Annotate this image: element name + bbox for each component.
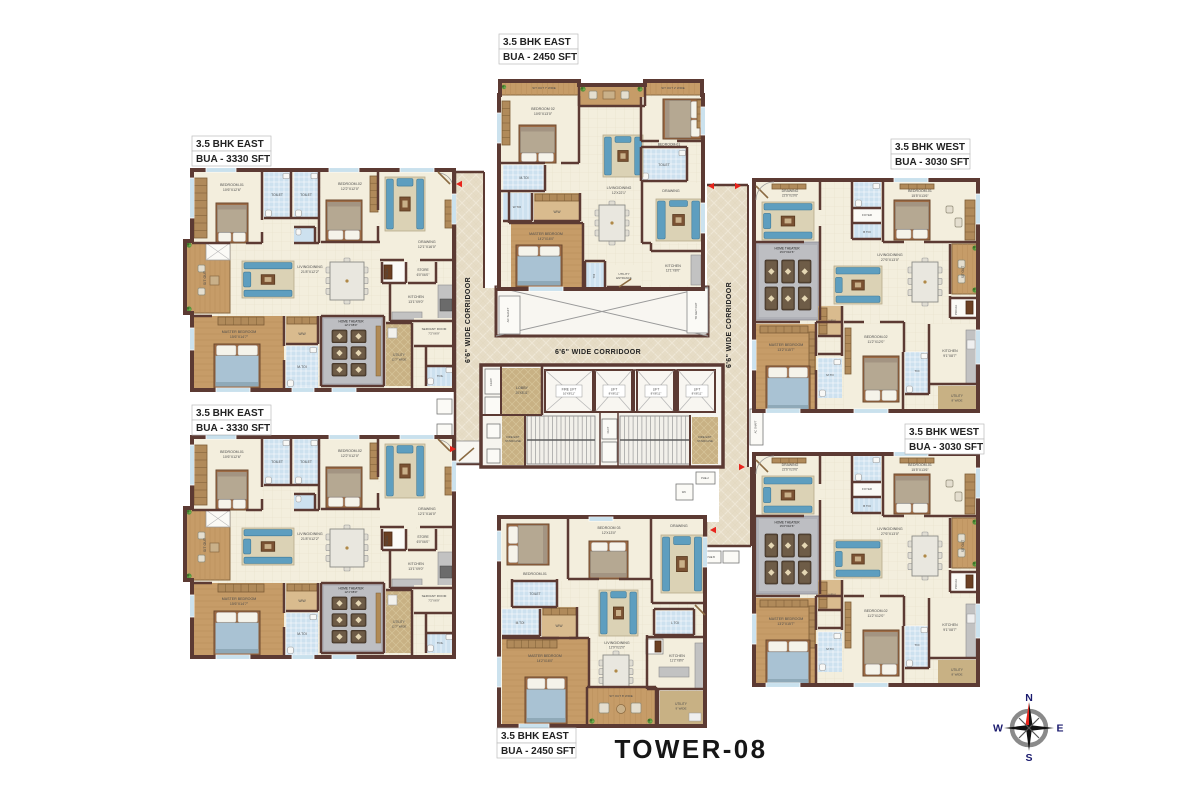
- svg-text:KITCHEN: KITCHEN: [665, 264, 681, 268]
- svg-text:BEDROOM-02: BEDROOM-02: [338, 449, 362, 453]
- svg-text:15'2"X10'6": 15'2"X10'6": [780, 524, 795, 528]
- svg-text:POOJA: POOJA: [385, 268, 389, 280]
- svg-text:6'6" WIDE CORRIDOOR: 6'6" WIDE CORRIDOOR: [555, 349, 641, 356]
- svg-text:TOILET: TOILET: [300, 193, 312, 197]
- svg-text:KITCHEN: KITCHEN: [408, 295, 424, 299]
- svg-text:TOIL: TOIL: [437, 641, 444, 645]
- svg-text:8' WIDE: 8' WIDE: [952, 399, 963, 403]
- svg-text:TOILET: TOILET: [658, 163, 669, 167]
- svg-text:BEDROOM-01: BEDROOM-01: [220, 450, 244, 454]
- svg-text:BEDROOM 03: BEDROOM 03: [598, 526, 621, 530]
- svg-text:MASTER BEDROOM: MASTER BEDROOM: [769, 343, 804, 347]
- svg-text:TOI: TOI: [915, 643, 920, 647]
- svg-text:27'6"X13'0": 27'6"X13'0": [881, 258, 900, 262]
- svg-text:6'6" WIDE CORRIDOOR: 6'6" WIDE CORRIDOOR: [465, 277, 472, 363]
- svg-text:UTILITY: UTILITY: [951, 668, 964, 672]
- svg-text:12'1"X16'0": 12'1"X16'0": [418, 245, 437, 249]
- svg-text:STORE: STORE: [417, 535, 429, 539]
- svg-text:BUA - 3330 SFT: BUA - 3330 SFT: [196, 154, 270, 165]
- svg-text:6'0"X6'0": 6'0"X6'0": [417, 540, 430, 544]
- svg-text:LOBBY: LOBBY: [516, 386, 529, 390]
- svg-text:BEDROOM-02: BEDROOM-02: [864, 335, 887, 339]
- svg-text:N: N: [1025, 692, 1033, 704]
- svg-text:TOI: TOI: [915, 369, 920, 373]
- svg-text:14'2"X16'0": 14'2"X16'0": [538, 237, 554, 241]
- svg-text:FOYER: FOYER: [862, 213, 872, 217]
- svg-text:TOWER-08: TOWER-08: [614, 734, 767, 764]
- svg-text:STORE: STORE: [417, 268, 429, 272]
- svg-text:15'6"X14'7": 15'6"X14'7": [230, 602, 249, 606]
- svg-text:21'8"X12'2": 21'8"X12'2": [301, 537, 320, 541]
- svg-text:UTILITY: UTILITY: [675, 702, 688, 706]
- svg-text:BEDROOM-01: BEDROOM-01: [220, 183, 244, 187]
- svg-text:POOJA: POOJA: [954, 305, 958, 315]
- svg-text:BUA - 3030 SFT: BUA - 3030 SFT: [909, 442, 983, 453]
- svg-text:3.5 BHK WEST: 3.5 BHK WEST: [895, 142, 965, 153]
- svg-text:WIW: WIW: [554, 210, 561, 214]
- svg-text:STAIRCASE: STAIRCASE: [505, 439, 521, 443]
- svg-text:PHE B: PHE B: [707, 555, 715, 559]
- svg-text:LIVING/DINING: LIVING/DINING: [297, 265, 323, 269]
- svg-text:E: E: [1056, 723, 1063, 735]
- svg-text:12'X13'0": 12'X13'0": [602, 531, 617, 535]
- svg-text:PHE-2: PHE-2: [701, 476, 709, 480]
- svg-text:BEDROOM-02: BEDROOM-02: [338, 182, 362, 186]
- svg-text:KITCHEN: KITCHEN: [408, 562, 424, 566]
- svg-text:DRAWING: DRAWING: [782, 463, 799, 467]
- svg-text:M.TO: M.TO: [826, 647, 834, 651]
- svg-text:M.TO: M.TO: [826, 373, 834, 377]
- svg-text:M-TOI: M-TOI: [297, 632, 307, 636]
- svg-text:LIVING/DINING: LIVING/DINING: [607, 186, 632, 190]
- svg-text:8'X8'11": 8'X8'11": [692, 392, 703, 396]
- svg-text:11'2"X12'0": 11'2"X12'0": [867, 340, 885, 344]
- svg-text:15'6"X14'7": 15'6"X14'7": [230, 335, 249, 339]
- svg-text:15'5"X13'6": 15'5"X13'6": [911, 194, 929, 198]
- svg-text:DRAWING: DRAWING: [782, 189, 799, 193]
- svg-text:SERVANT ROOM: SERVANT ROOM: [422, 327, 447, 331]
- svg-text:AC SHAFT: AC SHAFT: [506, 307, 510, 322]
- svg-text:LIVING/DINING: LIVING/DINING: [604, 641, 630, 645]
- svg-text:TOILET: TOILET: [271, 460, 283, 464]
- svg-text:BEDROOM-01: BEDROOM-01: [908, 189, 932, 193]
- svg-text:STAIRCASE: STAIRCASE: [697, 439, 713, 443]
- svg-text:BUA - 3330 SFT: BUA - 3330 SFT: [196, 423, 270, 434]
- svg-text:MASTER BEDROOM: MASTER BEDROOM: [222, 597, 257, 601]
- svg-text:BEDROOM-02: BEDROOM-02: [864, 609, 887, 613]
- svg-text:SIT OUT: SIT OUT: [203, 270, 207, 285]
- svg-text:20'X8'11": 20'X8'11": [515, 391, 528, 395]
- svg-text:DRAWING: DRAWING: [418, 240, 435, 244]
- svg-text:MASTER BEDROOM: MASTER BEDROOM: [769, 617, 804, 621]
- svg-text:6'0"X6'0": 6'0"X6'0": [417, 273, 430, 277]
- svg-text:W.TOI: W.TOI: [513, 205, 522, 209]
- svg-text:B TOI: B TOI: [863, 504, 871, 508]
- svg-text:12'2"X12'0": 12'2"X12'0": [341, 454, 360, 458]
- svg-text:3.5 BHK EAST: 3.5 BHK EAST: [503, 37, 571, 48]
- svg-text:L TOI: L TOI: [671, 621, 679, 625]
- svg-text:12'1"X8'0": 12'1"X8'0": [666, 269, 680, 273]
- svg-text:12'1"X16'0": 12'1"X16'0": [418, 512, 437, 516]
- svg-text:UTILITY: UTILITY: [393, 620, 406, 624]
- svg-text:12'9"X22'0": 12'9"X22'0": [609, 646, 625, 650]
- svg-text:TOILET: TOILET: [271, 193, 283, 197]
- svg-text:BUA - 2450 SFT: BUA - 2450 SFT: [501, 746, 575, 757]
- svg-text:12'2"X12'0": 12'2"X12'0": [341, 187, 360, 191]
- svg-text:SIT OUT: SIT OUT: [961, 266, 965, 279]
- svg-text:22'6"X20'6": 22'6"X20'6": [782, 468, 798, 472]
- svg-text:11'2"X12'0": 11'2"X12'0": [867, 614, 885, 618]
- svg-text:22'6"X20'6": 22'6"X20'6": [782, 194, 798, 198]
- svg-text:27'6"X13'0": 27'6"X13'0": [881, 532, 900, 536]
- svg-text:3.5 BHK WEST: 3.5 BHK WEST: [909, 427, 979, 438]
- svg-text:BEDROOM 02: BEDROOM 02: [531, 107, 555, 111]
- svg-text:UTILITY: UTILITY: [951, 394, 964, 398]
- svg-text:7'2"X6'9": 7'2"X6'9": [428, 599, 440, 603]
- svg-text:15'5"X13'6": 15'5"X13'6": [911, 468, 929, 472]
- svg-text:BUA - 3030 SFT: BUA - 3030 SFT: [895, 157, 969, 168]
- svg-text:BEDROOM-01: BEDROOM-01: [908, 463, 932, 467]
- svg-text:DRAWING: DRAWING: [670, 524, 687, 528]
- svg-text:12'X22'1": 12'X22'1": [612, 191, 627, 195]
- svg-text:TOILET: TOILET: [529, 592, 540, 596]
- svg-text:TOI: TOI: [592, 273, 596, 278]
- svg-text:SIT OUT 2' WIDE: SIT OUT 2' WIDE: [661, 86, 684, 90]
- svg-text:M.TOI: M.TOI: [516, 621, 525, 625]
- svg-text:21'8"X12'2": 21'8"X12'2": [301, 270, 320, 274]
- svg-text:13'2"X15'7": 13'2"X15'7": [777, 348, 795, 352]
- svg-text:DRAWING: DRAWING: [662, 189, 679, 193]
- svg-text:12'1"X8'0": 12'1"X8'0": [344, 590, 357, 594]
- svg-text:KITCHEN: KITCHEN: [669, 654, 685, 658]
- svg-text:14'2"X16'0": 14'2"X16'0": [537, 659, 553, 663]
- svg-text:MASTER BEDROOM: MASTER BEDROOM: [529, 232, 563, 236]
- svg-text:F.EXIT: F.EXIT: [489, 378, 493, 386]
- svg-text:11'7" WIDE: 11'7" WIDE: [392, 625, 407, 629]
- svg-text:10'X8'11": 10'X8'11": [563, 392, 575, 396]
- svg-text:B TOI: B TOI: [863, 230, 871, 234]
- svg-text:8'X8'11": 8'X8'11": [609, 392, 620, 396]
- svg-text:POOJA: POOJA: [385, 535, 389, 547]
- svg-text:MASTER BEDROOM: MASTER BEDROOM: [222, 330, 257, 334]
- svg-text:8'X8'11": 8'X8'11": [651, 392, 662, 396]
- svg-text:12'1"X8'0": 12'1"X8'0": [344, 323, 357, 327]
- svg-text:LIVING/DINING: LIVING/DINING: [297, 532, 323, 536]
- svg-text:11'7" WIDE: 11'7" WIDE: [392, 358, 407, 362]
- svg-text:10'6"X13'0": 10'6"X13'0": [534, 112, 553, 116]
- svg-text:9' WIDE: 9' WIDE: [676, 707, 687, 711]
- svg-text:UTILITY: UTILITY: [393, 353, 406, 357]
- svg-text:AC SHAFT: AC SHAFT: [754, 420, 758, 433]
- svg-text:8' WIDE: 8' WIDE: [952, 673, 963, 677]
- svg-text:6'6" WIDE CORRIDOOR: 6'6" WIDE CORRIDOOR: [726, 282, 733, 368]
- svg-text:DRAWING: DRAWING: [418, 507, 435, 511]
- svg-text:11'2"X8'0": 11'2"X8'0": [670, 659, 684, 663]
- svg-text:WC: WC: [682, 490, 686, 494]
- svg-text:WIW: WIW: [298, 332, 306, 336]
- svg-text:9'1"X8'7": 9'1"X8'7": [943, 354, 957, 358]
- svg-text:WIW: WIW: [298, 599, 306, 603]
- svg-text:TO GET OUT: TO GET OUT: [694, 302, 698, 319]
- svg-text:W: W: [993, 723, 1003, 735]
- svg-text:POOJA: POOJA: [954, 579, 958, 589]
- svg-text:FOYER: FOYER: [862, 487, 872, 491]
- svg-text:SIT OUT: SIT OUT: [961, 540, 965, 553]
- svg-text:7'2"X6'9": 7'2"X6'9": [428, 332, 440, 336]
- svg-text:DUCT: DUCT: [607, 426, 610, 433]
- svg-text:3.5 BHK EAST: 3.5 BHK EAST: [196, 139, 264, 150]
- svg-text:BEDROOM-01: BEDROOM-01: [523, 572, 547, 576]
- svg-text:13'2"X15'7": 13'2"X15'7": [777, 622, 795, 626]
- svg-text:13'1"X9'0": 13'1"X9'0": [408, 300, 424, 304]
- svg-text:MASTER BEDROOM: MASTER BEDROOM: [528, 654, 562, 658]
- svg-text:KITCHEN: KITCHEN: [942, 349, 958, 353]
- svg-text:SIT OUT: SIT OUT: [203, 537, 207, 552]
- svg-text:10'6"X12'6": 10'6"X12'6": [223, 188, 242, 192]
- svg-text:TOIL: TOIL: [437, 374, 444, 378]
- svg-text:SERVANT ROOM: SERVANT ROOM: [422, 594, 447, 598]
- svg-text:TOILET: TOILET: [300, 460, 312, 464]
- svg-text:M-TOI: M-TOI: [520, 176, 529, 180]
- svg-text:BUA - 2450 SFT: BUA - 2450 SFT: [503, 52, 577, 63]
- svg-text:M-TOI: M-TOI: [297, 365, 307, 369]
- svg-text:LIVING/DINING: LIVING/DINING: [877, 527, 903, 531]
- svg-text:KITCHEN: KITCHEN: [942, 623, 958, 627]
- svg-text:3.5 BHK EAST: 3.5 BHK EAST: [501, 731, 569, 742]
- svg-text:WIW: WIW: [556, 624, 563, 628]
- svg-text:SIT OUT 7' WIDE: SIT OUT 7' WIDE: [532, 86, 555, 90]
- svg-text:13'1"X9'0": 13'1"X9'0": [408, 567, 424, 571]
- svg-text:10'6"X12'6": 10'6"X12'6": [223, 455, 242, 459]
- svg-text:SIT OUT 8' WIDE: SIT OUT 8' WIDE: [609, 694, 632, 698]
- svg-text:LIVING/DINING: LIVING/DINING: [877, 253, 903, 257]
- svg-text:S: S: [1025, 752, 1032, 764]
- svg-text:9'1"X8'7": 9'1"X8'7": [943, 628, 957, 632]
- svg-text:15'2"X10'6": 15'2"X10'6": [780, 250, 795, 254]
- svg-text:3.5 BHK EAST: 3.5 BHK EAST: [196, 408, 264, 419]
